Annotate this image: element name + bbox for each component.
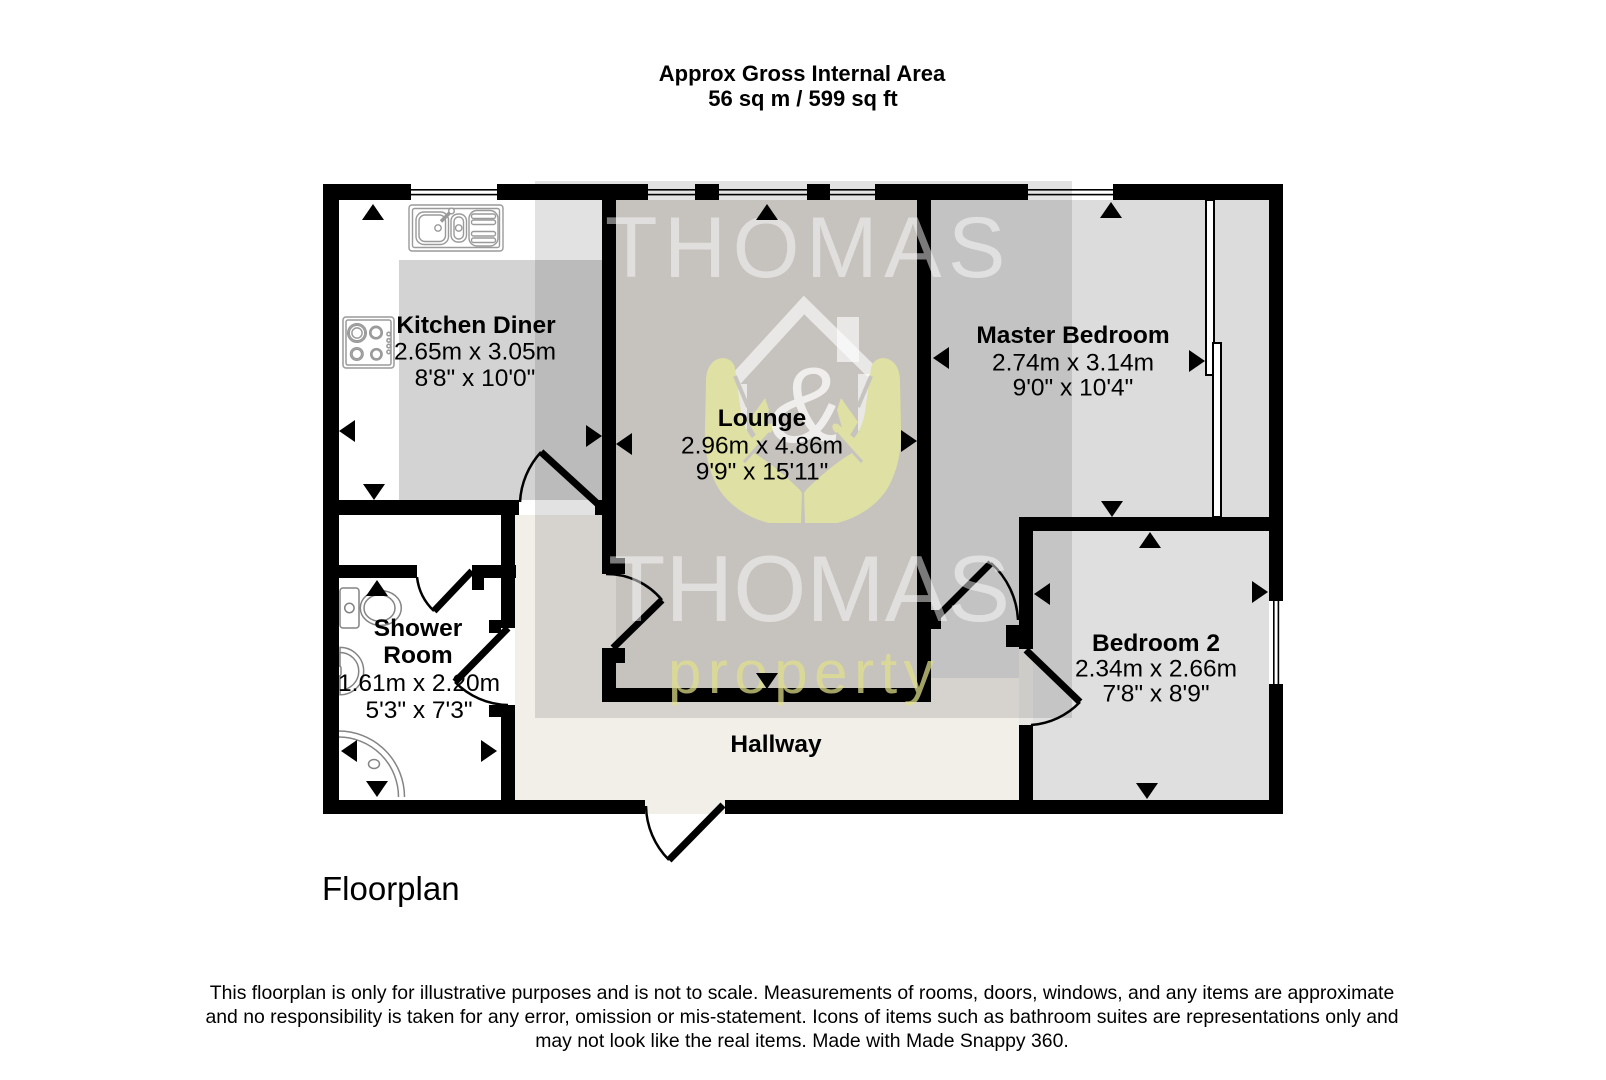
svg-text:2.74m x 3.14m: 2.74m x 3.14m bbox=[992, 350, 1154, 377]
svg-text:56 sq m / 599 sq ft: 56 sq m / 599 sq ft bbox=[708, 86, 898, 111]
svg-text:THOMAS: THOMAS bbox=[605, 200, 1012, 296]
svg-text:Floorplan: Floorplan bbox=[322, 870, 460, 907]
svg-text:Kitchen Diner: Kitchen Diner bbox=[396, 312, 556, 339]
svg-text:9'0" x 10'4": 9'0" x 10'4" bbox=[1013, 375, 1134, 402]
svg-text:7'8" x 8'9": 7'8" x 8'9" bbox=[1102, 681, 1209, 708]
svg-text:Bedroom 2: Bedroom 2 bbox=[1092, 630, 1220, 657]
svg-text:2.65m x 3.05m: 2.65m x 3.05m bbox=[394, 339, 556, 366]
svg-text:2.34m x 2.66m: 2.34m x 2.66m bbox=[1075, 656, 1237, 683]
svg-text:Hallway: Hallway bbox=[730, 731, 822, 758]
svg-text:Lounge: Lounge bbox=[718, 405, 806, 432]
svg-text:may not look like the real ite: may not look like the real items. Made w… bbox=[535, 1030, 1069, 1052]
svg-text:Room: Room bbox=[383, 642, 452, 669]
svg-text:Master Bedroom: Master Bedroom bbox=[976, 322, 1169, 349]
svg-text:1.61m x 2.20m: 1.61m x 2.20m bbox=[338, 670, 500, 697]
svg-text:THOMAS: THOMAS bbox=[608, 536, 1010, 641]
svg-text:Approx Gross Internal Area: Approx Gross Internal Area bbox=[659, 61, 946, 86]
svg-text:property: property bbox=[668, 639, 940, 706]
svg-text:9'9" x 15'11": 9'9" x 15'11" bbox=[696, 459, 829, 486]
svg-text:8'8" x 10'0": 8'8" x 10'0" bbox=[415, 365, 536, 392]
svg-text:2.96m x 4.86m: 2.96m x 4.86m bbox=[681, 433, 843, 460]
svg-text:5'3" x 7'3": 5'3" x 7'3" bbox=[365, 697, 472, 724]
svg-text:This floorplan is only for ill: This floorplan is only for illustrative … bbox=[210, 982, 1394, 1004]
svg-text:and no responsibility is taken: and no responsibility is taken for any e… bbox=[205, 1006, 1398, 1028]
svg-text:Shower: Shower bbox=[374, 615, 463, 642]
